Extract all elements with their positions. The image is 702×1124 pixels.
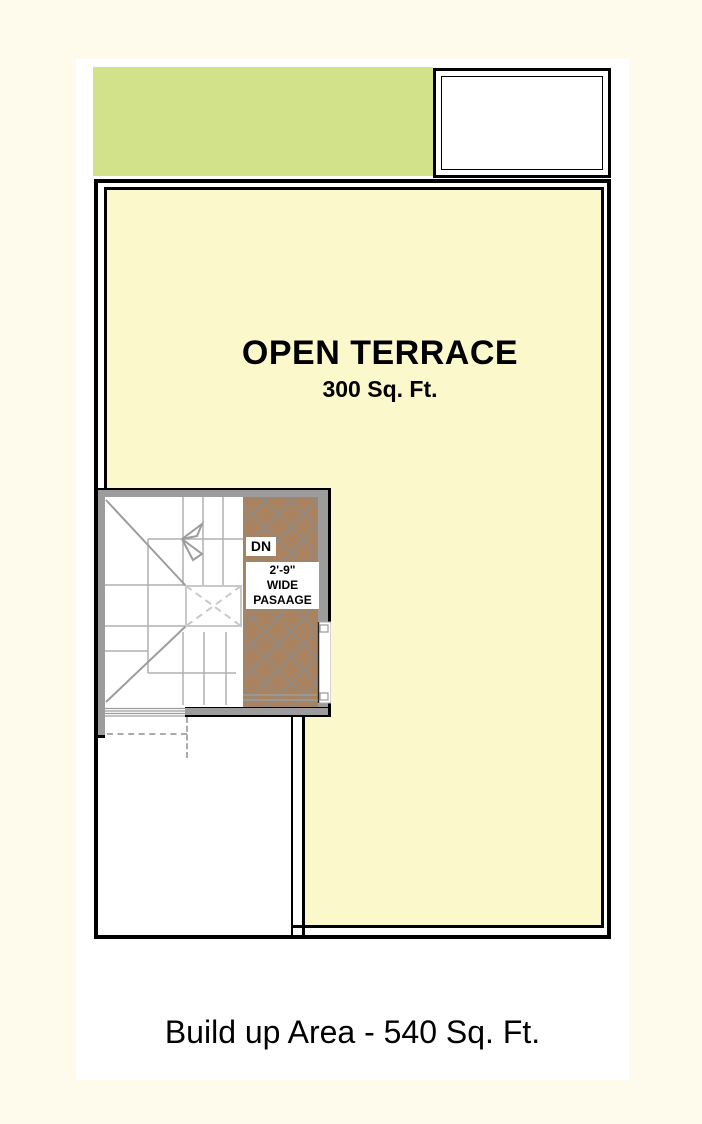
title-block [433, 68, 611, 178]
floor-plan-canvas: OPEN TERRACE 300 Sq. Ft. [0, 0, 702, 1124]
door-opening [318, 622, 331, 703]
hidden-edge-dashed-vertical [186, 717, 188, 758]
passage-width-label: 2'-9" WIDE PASAAGE [246, 562, 319, 609]
build-up-area-label: Build up Area - 540 Sq. Ft. [76, 1014, 629, 1051]
terrace-title: OPEN TERRACE [230, 334, 530, 373]
title-block-inner [441, 76, 603, 170]
passage-label-line2: WIDE [246, 578, 319, 593]
lower-room-cutout [98, 717, 305, 935]
wall-extension-cap [98, 735, 105, 738]
wall-extension [98, 717, 105, 736]
passage-label-line3: PASAAGE [246, 593, 319, 608]
room-divider-line [291, 717, 293, 935]
passage-label-line1: 2'-9" [246, 563, 319, 578]
stair-down-label: DN [246, 537, 276, 556]
border-step-segment [291, 925, 305, 928]
landing-square [186, 586, 241, 626]
green-roof-block [93, 67, 433, 176]
hidden-edge-dashed-horizontal [107, 733, 187, 735]
terrace-area-label: 300 Sq. Ft. [230, 376, 530, 403]
